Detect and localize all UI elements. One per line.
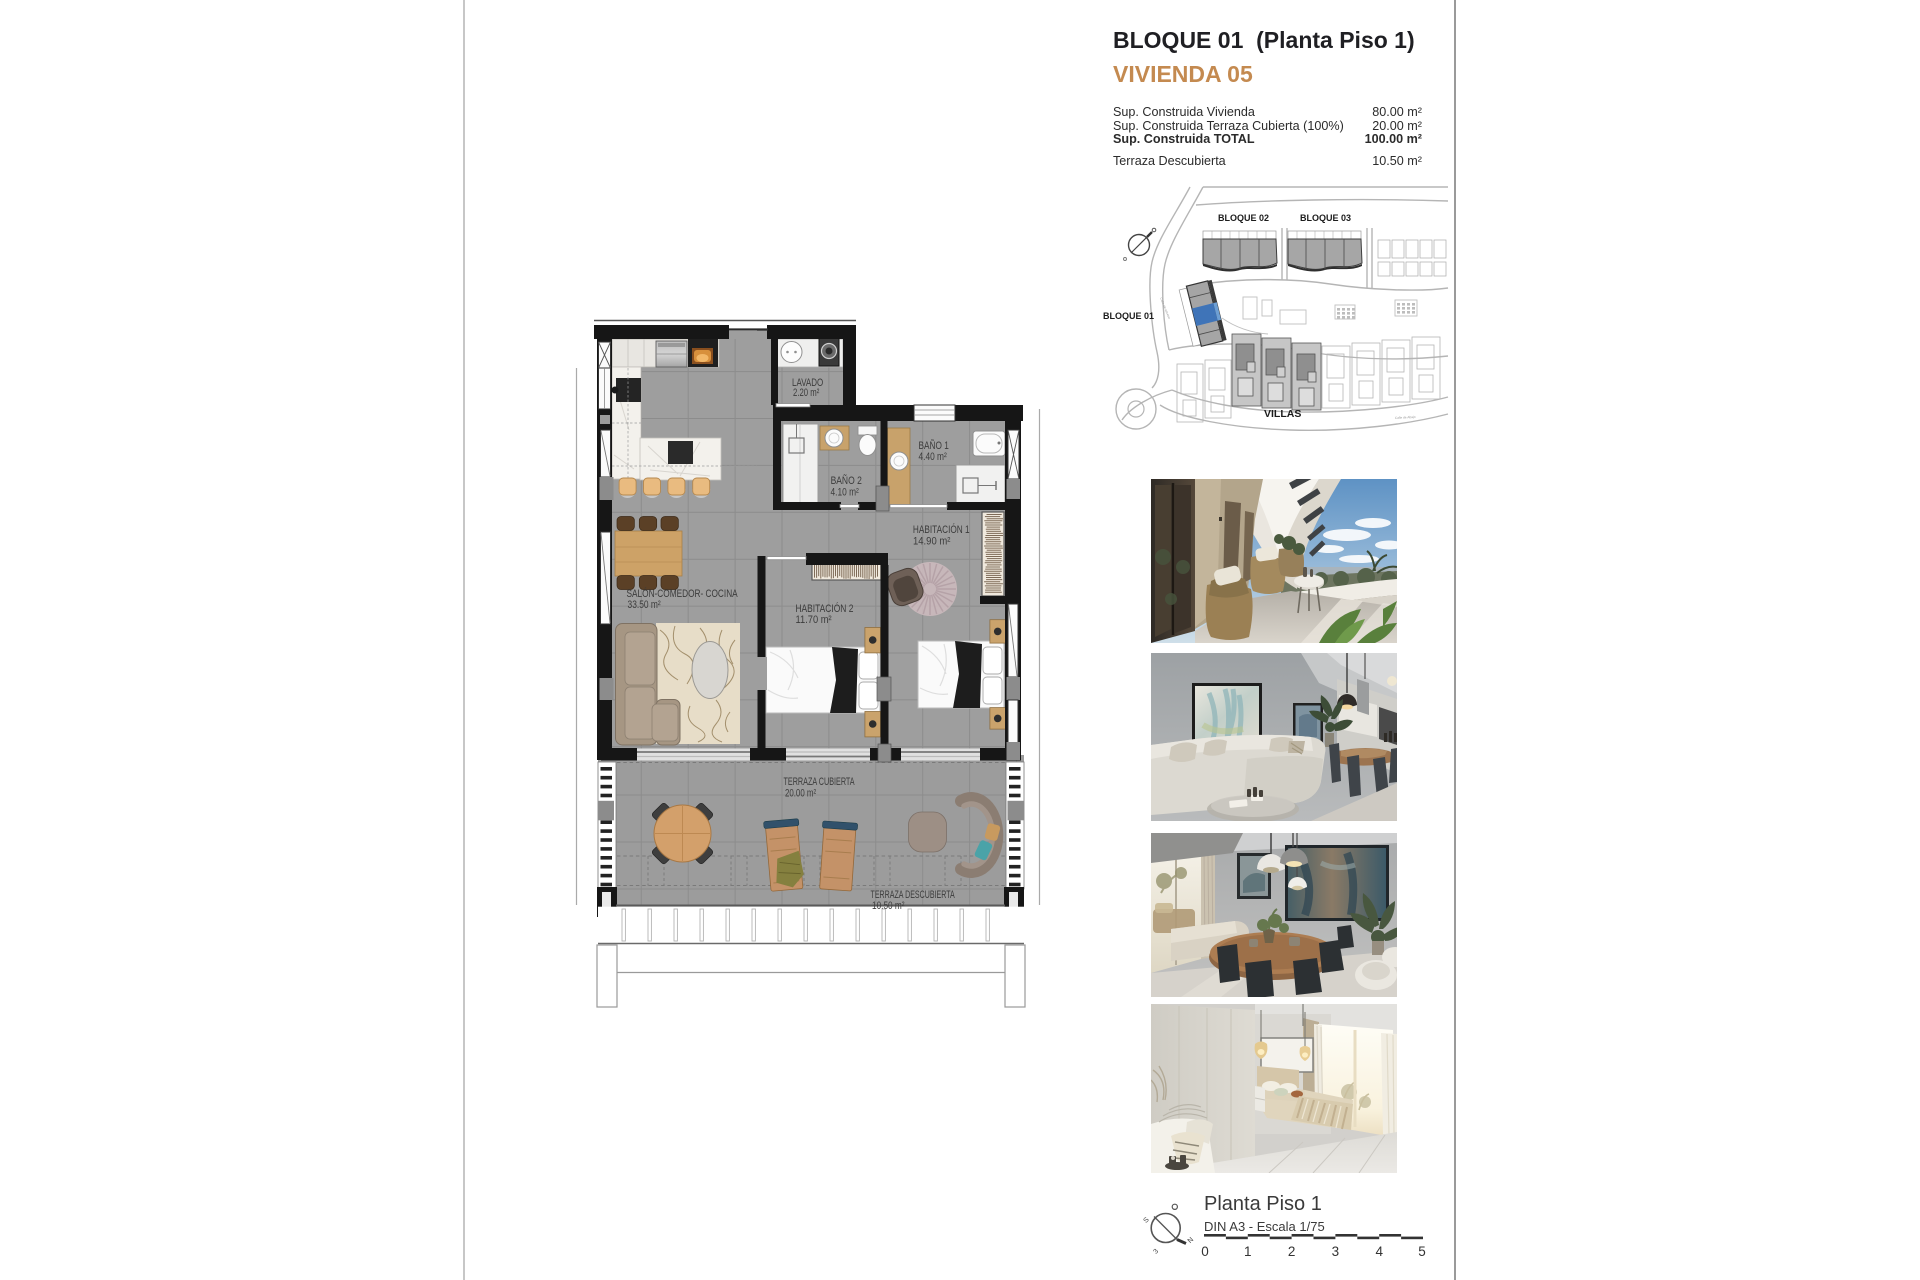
svg-text:BLOQUE 02: BLOQUE 02 xyxy=(1218,213,1269,223)
svg-text:20.00 m²: 20.00 m² xyxy=(785,787,816,800)
svg-text:TERRAZA DESCUBIERTA: TERRAZA DESCUBIERTA xyxy=(871,888,956,900)
svg-text:TERRAZA CUBIERTA: TERRAZA CUBIERTA xyxy=(783,776,855,788)
svg-text:3: 3 xyxy=(1332,1244,1340,1259)
svg-text:5: 5 xyxy=(1418,1244,1426,1259)
svg-text:14.90 m²: 14.90 m² xyxy=(913,536,951,548)
svg-text:BLOQUE 01: BLOQUE 01 xyxy=(1103,311,1154,321)
svg-text:4.40 m²: 4.40 m² xyxy=(918,451,947,463)
svg-text:1: 1 xyxy=(1244,1244,1252,1259)
svg-text:Calle de acceso: Calle de acceso xyxy=(1159,297,1171,320)
svg-text:2.20 m²: 2.20 m² xyxy=(793,387,819,400)
svg-text:4.10 m²: 4.10 m² xyxy=(831,486,860,498)
svg-text:Calle de Abajo: Calle de Abajo xyxy=(1395,415,1416,420)
svg-text:10.50 m²: 10.50 m² xyxy=(872,900,905,912)
svg-text:N: N xyxy=(1187,1236,1196,1245)
svg-text:2: 2 xyxy=(1288,1244,1296,1259)
svg-text:VILLAS: VILLAS xyxy=(1264,408,1301,420)
svg-text:HABITACIÓN 1: HABITACIÓN 1 xyxy=(913,524,970,536)
svg-text:3: 3 xyxy=(1152,1248,1160,1256)
svg-text:S: S xyxy=(1142,1216,1150,1224)
svg-text:33.50 m²: 33.50 m² xyxy=(628,599,662,611)
svg-text:4: 4 xyxy=(1375,1244,1383,1259)
svg-text:0: 0 xyxy=(1201,1244,1209,1259)
svg-text:11.70 m²: 11.70 m² xyxy=(796,614,833,626)
svg-text:BLOQUE 03: BLOQUE 03 xyxy=(1300,213,1351,223)
